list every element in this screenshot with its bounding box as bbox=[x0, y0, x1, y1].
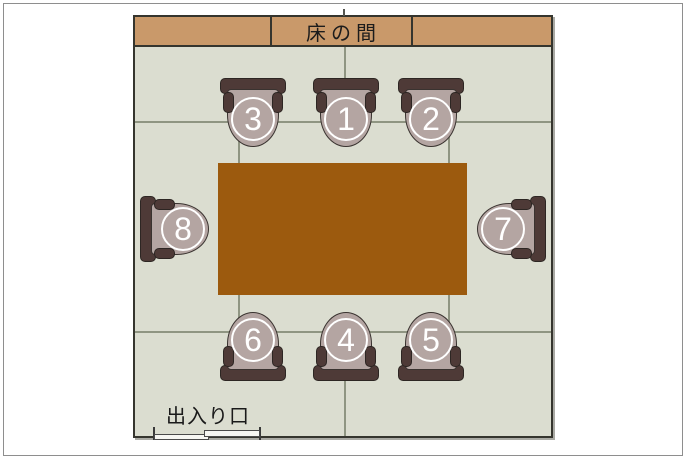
chair-armrest bbox=[511, 248, 532, 259]
seat-6: 6 bbox=[220, 309, 286, 381]
seat-3: 3 bbox=[220, 78, 286, 150]
seat-8: 8 bbox=[140, 196, 212, 262]
seat-1: 1 bbox=[313, 78, 379, 150]
seat-number-badge: 3 bbox=[231, 97, 275, 141]
seat-number: 8 bbox=[174, 213, 192, 245]
seat-number: 1 bbox=[337, 103, 355, 135]
seat-number-badge: 4 bbox=[324, 318, 368, 362]
seat-number-badge: 1 bbox=[324, 97, 368, 141]
entrance-label: 出入り口 bbox=[166, 400, 250, 429]
chair-armrest bbox=[154, 248, 175, 259]
meeting-table bbox=[218, 163, 467, 295]
chair-armrest bbox=[272, 92, 283, 113]
seat-number-badge: 8 bbox=[161, 207, 205, 251]
wall-center-tick bbox=[343, 9, 345, 16]
seat-number: 4 bbox=[337, 324, 355, 356]
chair-armrest bbox=[272, 346, 283, 367]
seat-number: 7 bbox=[494, 213, 512, 245]
seat-number: 6 bbox=[244, 324, 262, 356]
seat-number-badge: 5 bbox=[409, 318, 453, 362]
seat-number-badge: 7 bbox=[481, 207, 525, 251]
seat-number-badge: 2 bbox=[409, 97, 453, 141]
seat-4: 4 bbox=[313, 309, 379, 381]
chair-armrest bbox=[365, 346, 376, 367]
seat-number: 5 bbox=[422, 324, 440, 356]
tokonoma-label: 床の間 bbox=[270, 17, 412, 45]
chair-armrest bbox=[154, 199, 175, 210]
seat-number-badge: 6 bbox=[231, 318, 275, 362]
chair-armrest bbox=[450, 92, 461, 113]
seat-number: 3 bbox=[244, 103, 262, 135]
chair-armrest bbox=[365, 92, 376, 113]
sliding-door-panel-right bbox=[204, 430, 260, 437]
sliding-door-panel-left bbox=[154, 434, 209, 440]
seat-5: 5 bbox=[398, 309, 464, 381]
chair-armrest bbox=[511, 199, 532, 210]
seat-7: 7 bbox=[474, 196, 546, 262]
seating-diagram: 床の間 3 1 2 8 7 bbox=[0, 0, 686, 459]
chair-armrest bbox=[450, 346, 461, 367]
seat-number: 2 bbox=[422, 103, 440, 135]
seat-2: 2 bbox=[398, 78, 464, 150]
